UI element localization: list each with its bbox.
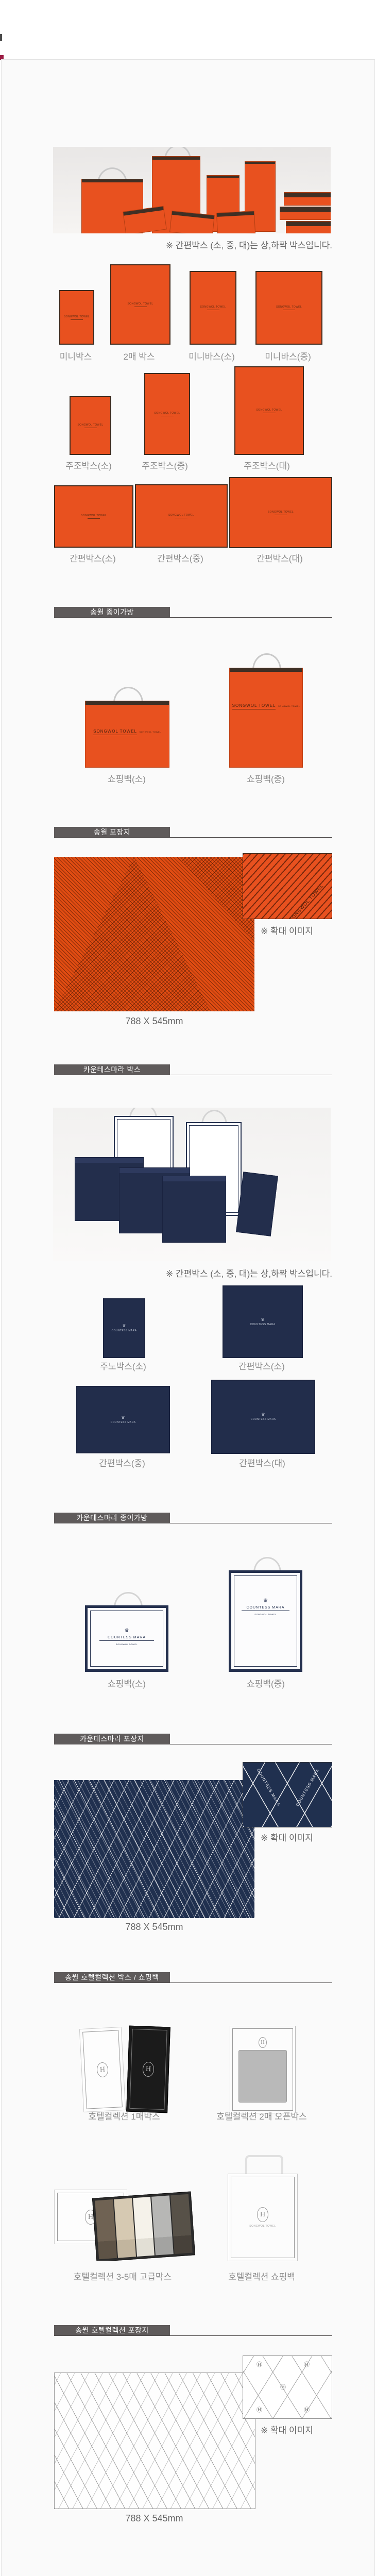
navy-packaging-photo bbox=[53, 1108, 331, 1261]
stacked-box-shape bbox=[284, 192, 331, 206]
white-box-shape: H bbox=[79, 2027, 126, 2112]
small-box-shape bbox=[169, 211, 215, 233]
hotel-item-label: 호텔컬렉션 1매박스 bbox=[88, 2109, 160, 2122]
magnify-note: ※ 확대 이미지 bbox=[246, 924, 328, 937]
bag-shopping-m: SONGWOL TOWEL SONGWOL TOWEL bbox=[229, 668, 303, 768]
box-logo: SONGWOL TOWEL bbox=[81, 514, 107, 517]
box-jujo-l: SONGWOL TOWEL bbox=[234, 366, 304, 455]
bag-logo: SONGWOL TOWEL bbox=[232, 703, 276, 709]
box-logo: SONGWOL TOWEL bbox=[168, 514, 194, 517]
orange-wrapping-paper bbox=[54, 857, 254, 1011]
cropped-text-fragment bbox=[0, 34, 2, 41]
box-minibath-s: SONGWOL TOWEL bbox=[190, 271, 236, 345]
towel-roll bbox=[170, 2194, 193, 2254]
bag-logo-sub: SONGWOL TOWEL bbox=[278, 705, 300, 707]
box-logo: SONGWOL TOWEL bbox=[276, 306, 302, 309]
crown-icon: ♛ bbox=[122, 1324, 126, 1328]
towel-tray-shape bbox=[92, 2191, 195, 2261]
crown-icon: ♛ bbox=[261, 1413, 265, 1417]
paper-size-label: 788 X 545mm bbox=[54, 2513, 254, 2524]
box-logo: SONGWOL TOWEL bbox=[64, 315, 90, 318]
box-logo: COUNTESS MARA bbox=[111, 1421, 136, 1424]
circled-h-icon: Ⓗ bbox=[280, 2383, 286, 2391]
towel-roll bbox=[114, 2198, 136, 2258]
bag-shopping-s: SONGWOL TOWEL SONGWOL TOWEL bbox=[85, 701, 169, 768]
bag-label: 쇼핑백(소) bbox=[108, 772, 146, 785]
crown-icon: ♛ bbox=[125, 1628, 129, 1634]
box-logo: SONGWOL TOWEL bbox=[256, 409, 282, 412]
towel-roll bbox=[95, 2199, 117, 2259]
bag-logo: SONGWOL TOWEL bbox=[93, 729, 137, 735]
box-label: 간편박스(소) bbox=[70, 551, 116, 564]
pair-box-note: ※ 간편박스 (소, 중, 대)는 상,하짝 박스입니다. bbox=[116, 1266, 332, 1279]
box-label: 주조박스(대) bbox=[244, 459, 290, 471]
section-header-songwol-paper: 송월 포장지 bbox=[54, 827, 332, 838]
box-label: 간편박스(대) bbox=[257, 551, 303, 564]
paper-logo: COUNTESS MARA bbox=[256, 1768, 281, 1807]
small-box-shape bbox=[216, 211, 255, 233]
section-header-bar: 송월 포장지 bbox=[54, 827, 170, 837]
navy-box-shape bbox=[236, 1172, 278, 1236]
circled-h-icon: Ⓗ bbox=[304, 2360, 310, 2368]
bag-cm-m: ♛ COUNTESS MARA SONGWOL TOWEL bbox=[229, 1570, 302, 1672]
navy-box-shape bbox=[162, 1176, 226, 1243]
hotel-1mae-box-photo: H H bbox=[77, 2024, 173, 2114]
hotel-item-label: 호텔컬렉션 쇼핑백 bbox=[228, 2269, 295, 2282]
pair-box-note: ※ 간편박스 (소, 중, 대)는 상,하짝 박스입니다. bbox=[116, 238, 332, 251]
hotel-item-label: 호텔컬렉션 3-5매 고급막스 bbox=[74, 2269, 172, 2282]
navy-wrapping-paper bbox=[54, 1780, 254, 1918]
box-logo: SONGWOL TOWEL bbox=[77, 423, 103, 427]
box-label: 주조박스(중) bbox=[142, 459, 188, 471]
bag-label: 쇼핑백(중) bbox=[247, 772, 285, 785]
product-detail-page: ※ 간편박스 (소, 중, 대)는 상,하짝 박스입니다. SONGWOL TO… bbox=[0, 0, 376, 2576]
box-ganpyeon-s-navy: ♛ COUNTESS MARA bbox=[223, 1285, 303, 1358]
stacked-box-shape bbox=[286, 221, 331, 233]
box-logo: SONGWOL TOWEL bbox=[154, 412, 180, 415]
box-logo: SONGWOL TOWEL bbox=[200, 306, 226, 309]
orange-packaging-photo bbox=[53, 147, 331, 233]
crown-icon: ♛ bbox=[263, 1598, 268, 1604]
box-mini: SONGWOL TOWEL bbox=[59, 290, 94, 345]
hotel-open-box-photo: H bbox=[227, 2024, 299, 2115]
bag-logo: COUNTESS MARA bbox=[242, 1606, 289, 1611]
crown-icon: ♛ bbox=[121, 1416, 125, 1420]
navy-paper-zoom-inset: COUNTESS MARA COUNTESS MARA bbox=[243, 1762, 332, 1827]
circled-h-icon: Ⓗ bbox=[304, 2405, 310, 2414]
box-ganpyeon-m: SONGWOL TOWEL bbox=[135, 484, 228, 548]
towel-roll bbox=[151, 2195, 174, 2255]
box-logo: COUNTESS MARA bbox=[112, 1329, 137, 1332]
bag-logo-sub: SONGWOL TOWEL bbox=[139, 731, 161, 733]
section-header-cm-paper: 카운테스마라 포장지 bbox=[54, 1734, 332, 1744]
box-minibath-m: SONGWOL TOWEL bbox=[255, 271, 322, 345]
section-header-bar: 송월 호텔컬렉션 박스 / 쇼핑백 bbox=[54, 1972, 170, 1982]
section-header-cm-box: 카운테스마라 박스 bbox=[54, 1064, 332, 1075]
section-header-bar: 카운테스마라 포장지 bbox=[54, 1734, 170, 1744]
section-header-bar: 송월 호텔컬렉션 포장지 bbox=[54, 2325, 170, 2335]
paper-logo: COUNTESS MARA bbox=[295, 1768, 320, 1807]
box-label: 간편박스(중) bbox=[157, 551, 203, 564]
box-label: 간편박스(중) bbox=[99, 1456, 145, 1469]
bag-cm-s: ♛ COUNTESS MARA SONGWOL TOWEL bbox=[85, 1605, 168, 1672]
section-header-bar: 송월 종이가방 bbox=[54, 607, 170, 617]
box-label: 미니바스(소) bbox=[189, 349, 235, 362]
hotel-shopping-bag-photo: H SONGWOL TOWEL bbox=[227, 2155, 299, 2262]
box-juno-s: ♛ COUNTESS MARA bbox=[103, 1298, 145, 1358]
paper-size-label: 788 X 545mm bbox=[54, 1922, 254, 1933]
paper-logo: SONGWOL TOWEL bbox=[288, 883, 324, 919]
box-label: 주조박스(소) bbox=[65, 459, 112, 471]
box-label: 미니박스 bbox=[60, 349, 92, 362]
box-jujo-m: SONGWOL TOWEL bbox=[144, 373, 190, 455]
bag-logo-sub: SONGWOL TOWEL bbox=[231, 1613, 300, 1616]
box-ganpyeon-m-navy: ♛ COUNTESS MARA bbox=[76, 1386, 170, 1453]
box-label: 미니바스(중) bbox=[265, 349, 311, 362]
crown-icon: ♛ bbox=[261, 1318, 264, 1322]
circled-h-icon: Ⓗ bbox=[257, 2360, 262, 2368]
section-header-bar: 카운테스마라 박스 bbox=[54, 1064, 170, 1075]
section-header-hotel-box: 송월 호텔컬렉션 박스 / 쇼핑백 bbox=[54, 1972, 332, 1983]
white-bag-shape: H SONGWOL TOWEL bbox=[228, 2174, 298, 2261]
box-logo: SONGWOL TOWEL bbox=[268, 511, 294, 514]
hotel-paper-zoom-inset: Ⓗ Ⓗ Ⓗ Ⓗ Ⓗ bbox=[243, 2355, 332, 2419]
hotel-wrapping-paper bbox=[54, 2372, 255, 2509]
section-header-bar: 카운테스마라 종이가방 bbox=[54, 1513, 170, 1523]
open-box-shape: H bbox=[230, 2026, 296, 2113]
hotel-item-label: 호텔컬렉션 2매 오픈박스 bbox=[216, 2109, 306, 2122]
magnify-note: ※ 확대 이미지 bbox=[246, 2423, 328, 2436]
magnify-note: ※ 확대 이미지 bbox=[246, 1831, 328, 1843]
box-ganpyeon-l: SONGWOL TOWEL bbox=[229, 477, 332, 548]
paper-size-label: 788 X 545mm bbox=[54, 1016, 254, 1027]
section-header-cm-bag: 카운테스마라 종이가방 bbox=[54, 1513, 332, 1523]
hotel-gift-box-photo: H bbox=[54, 2189, 196, 2261]
section-header-songwol-bag: 송월 종이가방 bbox=[54, 607, 332, 618]
box-logo: SONGWOL TOWEL bbox=[127, 302, 153, 306]
black-box-shape: H bbox=[126, 2026, 170, 2113]
box-label: 간편박스(대) bbox=[239, 1456, 285, 1469]
towel-roll bbox=[133, 2197, 155, 2257]
box-label: 간편박스(소) bbox=[238, 1359, 285, 1372]
bag-logo: COUNTESS MARA bbox=[99, 1636, 154, 1641]
box-ganpyeon-s: SONGWOL TOWEL bbox=[54, 485, 133, 548]
section-header-hotel-paper: 송월 호텔컬렉션 포장지 bbox=[54, 2325, 332, 2336]
box-logo: COUNTESS MARA bbox=[251, 1418, 276, 1421]
box-logo: COUNTESS MARA bbox=[250, 1323, 276, 1326]
bag-logo-sub: SONGWOL TOWEL bbox=[88, 1643, 166, 1646]
box-ganpyeon-l-navy: ♛ COUNTESS MARA bbox=[211, 1380, 315, 1454]
stacked-box-shape bbox=[280, 207, 331, 220]
box-label: 주노박스(소) bbox=[100, 1359, 146, 1372]
box-jujo-s: SONGWOL TOWEL bbox=[70, 396, 111, 455]
box-2mae: SONGWOL TOWEL bbox=[110, 264, 170, 345]
circled-h-icon: Ⓗ bbox=[257, 2405, 262, 2414]
orange-paper-zoom-inset: SONGWOL TOWEL bbox=[243, 853, 332, 919]
box-label: 2매 박스 bbox=[123, 349, 155, 362]
bag-label: 쇼핑백(중) bbox=[247, 1676, 285, 1689]
bag-label: 쇼핑백(소) bbox=[108, 1676, 146, 1689]
